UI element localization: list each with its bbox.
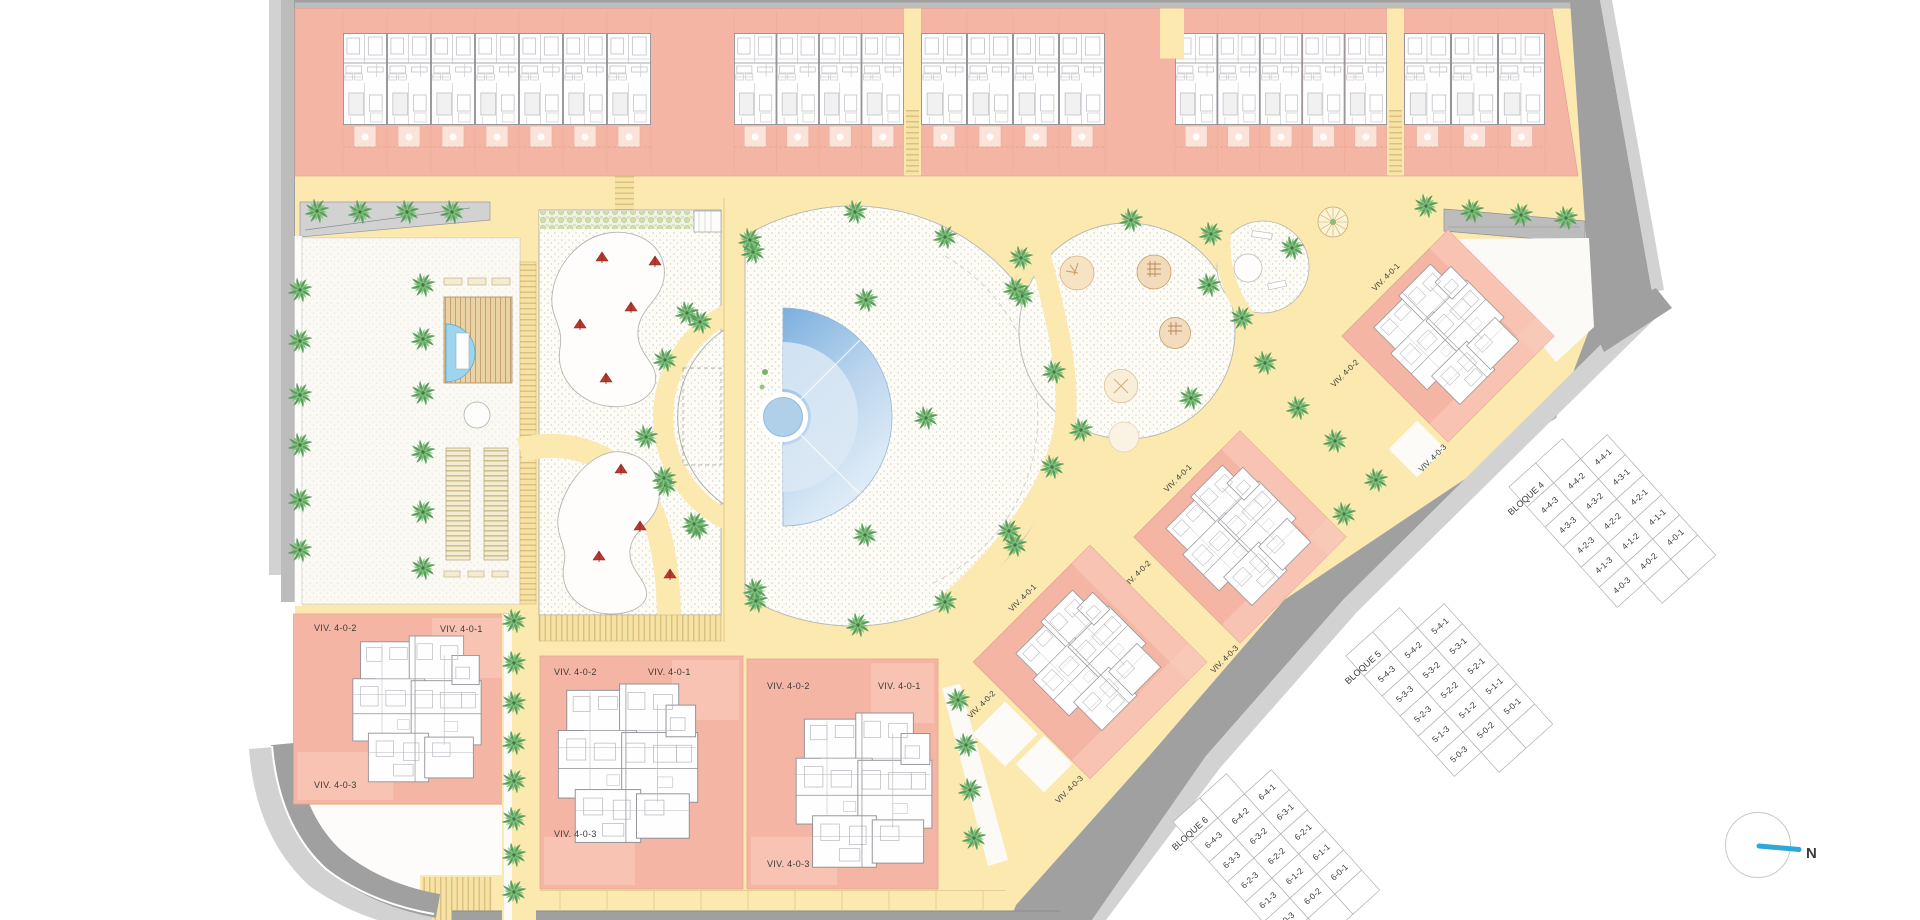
svg-text:VIV. 4-0-1: VIV. 4-0-1 xyxy=(648,667,691,677)
svg-text:VIV. 4-0-2: VIV. 4-0-2 xyxy=(314,623,357,633)
svg-text:VIV. 4-0-1: VIV. 4-0-1 xyxy=(878,681,921,691)
svg-text:VIV. 4-0-2: VIV. 4-0-2 xyxy=(554,667,597,677)
svg-text:VIV. 4-0-3: VIV. 4-0-3 xyxy=(554,829,597,839)
svg-text:VIV. 4-0-2: VIV. 4-0-2 xyxy=(767,681,810,691)
svg-text:VIV. 4-0-1: VIV. 4-0-1 xyxy=(440,624,483,634)
svg-text:VIV. 4-0-3: VIV. 4-0-3 xyxy=(314,780,357,790)
svg-text:N: N xyxy=(1806,845,1817,862)
svg-text:VIV. 4-0-3: VIV. 4-0-3 xyxy=(767,859,810,869)
